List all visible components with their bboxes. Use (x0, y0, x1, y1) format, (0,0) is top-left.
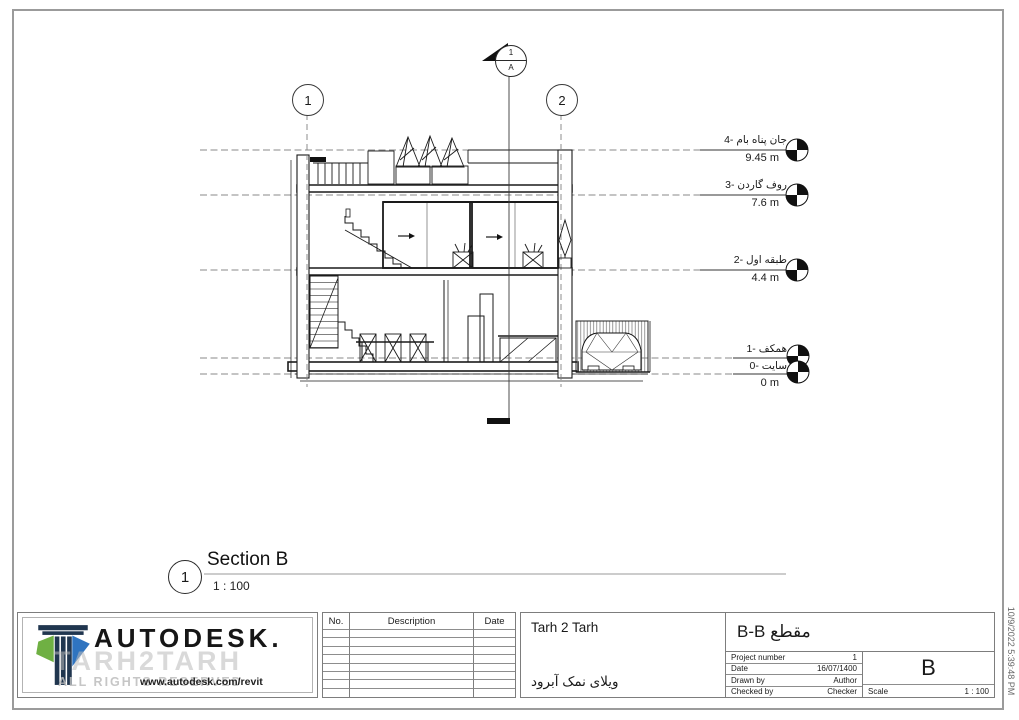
revision-row (323, 655, 515, 663)
watermark-text: TARH2TARH (54, 646, 242, 677)
field-label: Date (731, 664, 748, 673)
field-date: Date 16/07/1400 (726, 664, 862, 676)
project-info-box: Tarh 2 Tarh ویلای نمک آبرود (520, 612, 726, 698)
revision-table: No. Description Date (322, 612, 516, 698)
grid-label: 2 (558, 93, 565, 108)
field-value: 16/07/1400 (817, 664, 857, 673)
field-label: Checked by (731, 687, 773, 696)
field-value: Author (833, 676, 857, 685)
grid-bubble-2: 2 (546, 84, 578, 116)
revision-row (323, 630, 515, 638)
revision-header-row: No. Description Date (323, 613, 515, 630)
autodesk-url: www.autodesk.com/revit (140, 676, 263, 688)
revision-row (323, 680, 515, 688)
level-elevation-0: 0 m (627, 377, 779, 389)
ground-floor (310, 276, 558, 362)
grid-bubble-1: 1 (292, 84, 324, 116)
level-name-4: جان پناه بام -4 (627, 134, 787, 146)
project-name: ویلای نمک آبرود (531, 674, 715, 690)
section-head-symbol: 1 A (495, 45, 527, 77)
tree (396, 137, 420, 167)
revision-row (323, 672, 515, 680)
level-elevation-4: 9.45 m (627, 152, 779, 164)
revision-row (323, 638, 515, 646)
scale-label: Scale (868, 687, 888, 696)
drawing-sheet: 1 2 1 A جان پناه بام -4 9.45 m روف گاردن… (0, 0, 1019, 720)
tree (418, 136, 442, 167)
view-number-bubble: 1 (168, 560, 202, 594)
sheet-title: مقطع B-B (726, 613, 994, 651)
field-label: Project number (731, 653, 785, 662)
tree (440, 138, 464, 167)
logo-box: AUTODESK. TARH2TARH ALL RIGHTS RESERVED … (17, 612, 318, 698)
revision-col-no: No. (323, 613, 350, 630)
revision-col-description: Description (350, 613, 474, 630)
revision-row (323, 664, 515, 672)
grid-lines (307, 114, 561, 387)
revision-row (323, 647, 515, 655)
level-heads (786, 139, 809, 383)
view-number: 1 (181, 569, 189, 586)
field-value: 1 (853, 653, 857, 662)
print-timestamp: 10/9/2022 5:39:48 PM (1002, 586, 1016, 716)
grid-label: 1 (304, 93, 311, 108)
field-label: Drawn by (731, 676, 765, 685)
field-value: Checker (827, 687, 857, 696)
sheet-fields: Project number 1 Date 16/07/1400 Drawn b… (726, 651, 994, 697)
level-name-3: روف گاردن -3 (627, 179, 787, 191)
view-title: Section B (207, 549, 288, 571)
section-head-letter: A (496, 60, 526, 75)
client-name: Tarh 2 Tarh (531, 620, 715, 635)
level-elevation-3: 7.6 m (627, 197, 779, 209)
level-name-2: طبقه اول -2 (627, 254, 787, 266)
revision-col-date: Date (474, 613, 515, 630)
sheet-info-box: مقطع B-B Project number 1 Date 16/07/140… (725, 612, 995, 698)
level-name-1: همکف -1 (627, 343, 787, 355)
field-project-number: Project number 1 (726, 652, 862, 664)
section-head-number: 1 (496, 46, 526, 60)
level-name-0: سایت -0 (627, 360, 787, 372)
view-scale: 1 : 100 (213, 579, 250, 593)
roof-garden (313, 136, 558, 184)
level-elevation-2: 4.4 m (627, 272, 779, 284)
field-checked-by: Checked by Checker (726, 687, 862, 698)
field-drawn-by: Drawn by Author (726, 675, 862, 687)
scale-row: Scale 1 : 100 (863, 684, 994, 697)
first-floor (345, 202, 571, 268)
sheet-number: B (863, 652, 994, 684)
revision-row (323, 689, 515, 697)
scale-value: 1 : 100 (965, 687, 989, 696)
